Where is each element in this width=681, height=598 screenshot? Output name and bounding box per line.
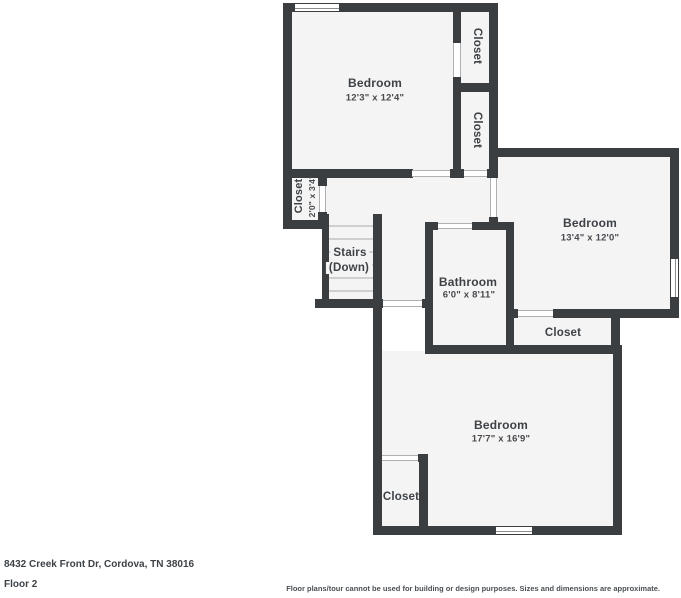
door-opening [383, 300, 422, 307]
floorplan-page: Bedroom 12'3" x 12'4" Closet Closet Clos… [0, 0, 681, 598]
wall [453, 92, 461, 170]
wall [506, 222, 514, 353]
bedroom-bottom-dims: 17'7" x 16'9" [472, 434, 530, 445]
wall [532, 526, 622, 535]
bathroom-label: Bathroom [439, 275, 497, 289]
stair-step [329, 277, 374, 279]
window [495, 526, 533, 535]
wall [506, 309, 518, 318]
wall [453, 83, 498, 92]
closet-top-1-label: Closet [471, 28, 483, 64]
bedroom-top-label: Bedroom [348, 76, 402, 90]
door-opening [382, 455, 418, 461]
wall [419, 454, 428, 531]
stair-step [329, 290, 374, 292]
door-opening [518, 310, 553, 317]
wall [373, 526, 496, 535]
closet-right-label: Closet [545, 327, 581, 339]
hallway-arm-area [378, 222, 428, 304]
wall [318, 169, 327, 186]
stair-step [329, 225, 374, 227]
floor-label: Floor 2 [4, 579, 37, 590]
door-opening [412, 170, 450, 177]
door-opening [438, 223, 472, 229]
stairs-down-label: (Down) [326, 262, 372, 274]
wall [425, 345, 622, 354]
floorplan-canvas: Bedroom 12'3" x 12'4" Closet Closet Clos… [0, 0, 681, 555]
wall [425, 222, 433, 353]
bathroom-dims: 6'0" x 8'11" [443, 290, 495, 301]
wall [613, 345, 622, 535]
wall [283, 169, 413, 178]
door-opening [319, 186, 326, 212]
wall [450, 169, 464, 178]
wall [283, 3, 292, 229]
disclaimer-text: Floor plans/tour cannot be used for buil… [286, 584, 660, 593]
bedroom-bottom-label: Bedroom [474, 418, 528, 432]
door-opening [453, 43, 461, 77]
closet-top-2-label: Closet [471, 112, 483, 148]
property-address: 8432 Creek Front Dr, Cordova, TN 38016 [4, 559, 194, 570]
wall [453, 11, 461, 43]
closet-left-label: Closet [293, 179, 305, 214]
closet-left-dims: 2'0" x 3'4" [307, 175, 317, 218]
door-opening [490, 178, 497, 217]
window [294, 3, 340, 12]
bedroom-right-dims: 13'4" x 12'0" [561, 233, 619, 244]
stair-step [329, 238, 374, 240]
closet-bottom-label: Closet [383, 491, 419, 503]
wall [489, 148, 679, 157]
wall [373, 299, 382, 535]
wall [425, 222, 438, 230]
wall [322, 214, 329, 308]
wall [373, 214, 382, 308]
bedroom-top-dims: 12'3" x 12'4" [346, 93, 404, 104]
wall [487, 169, 498, 178]
window [670, 258, 679, 298]
wall [670, 148, 679, 258]
door-opening [464, 170, 487, 177]
bedroom-right-label: Bedroom [563, 216, 617, 230]
stairs-label: Stairs [330, 247, 369, 259]
